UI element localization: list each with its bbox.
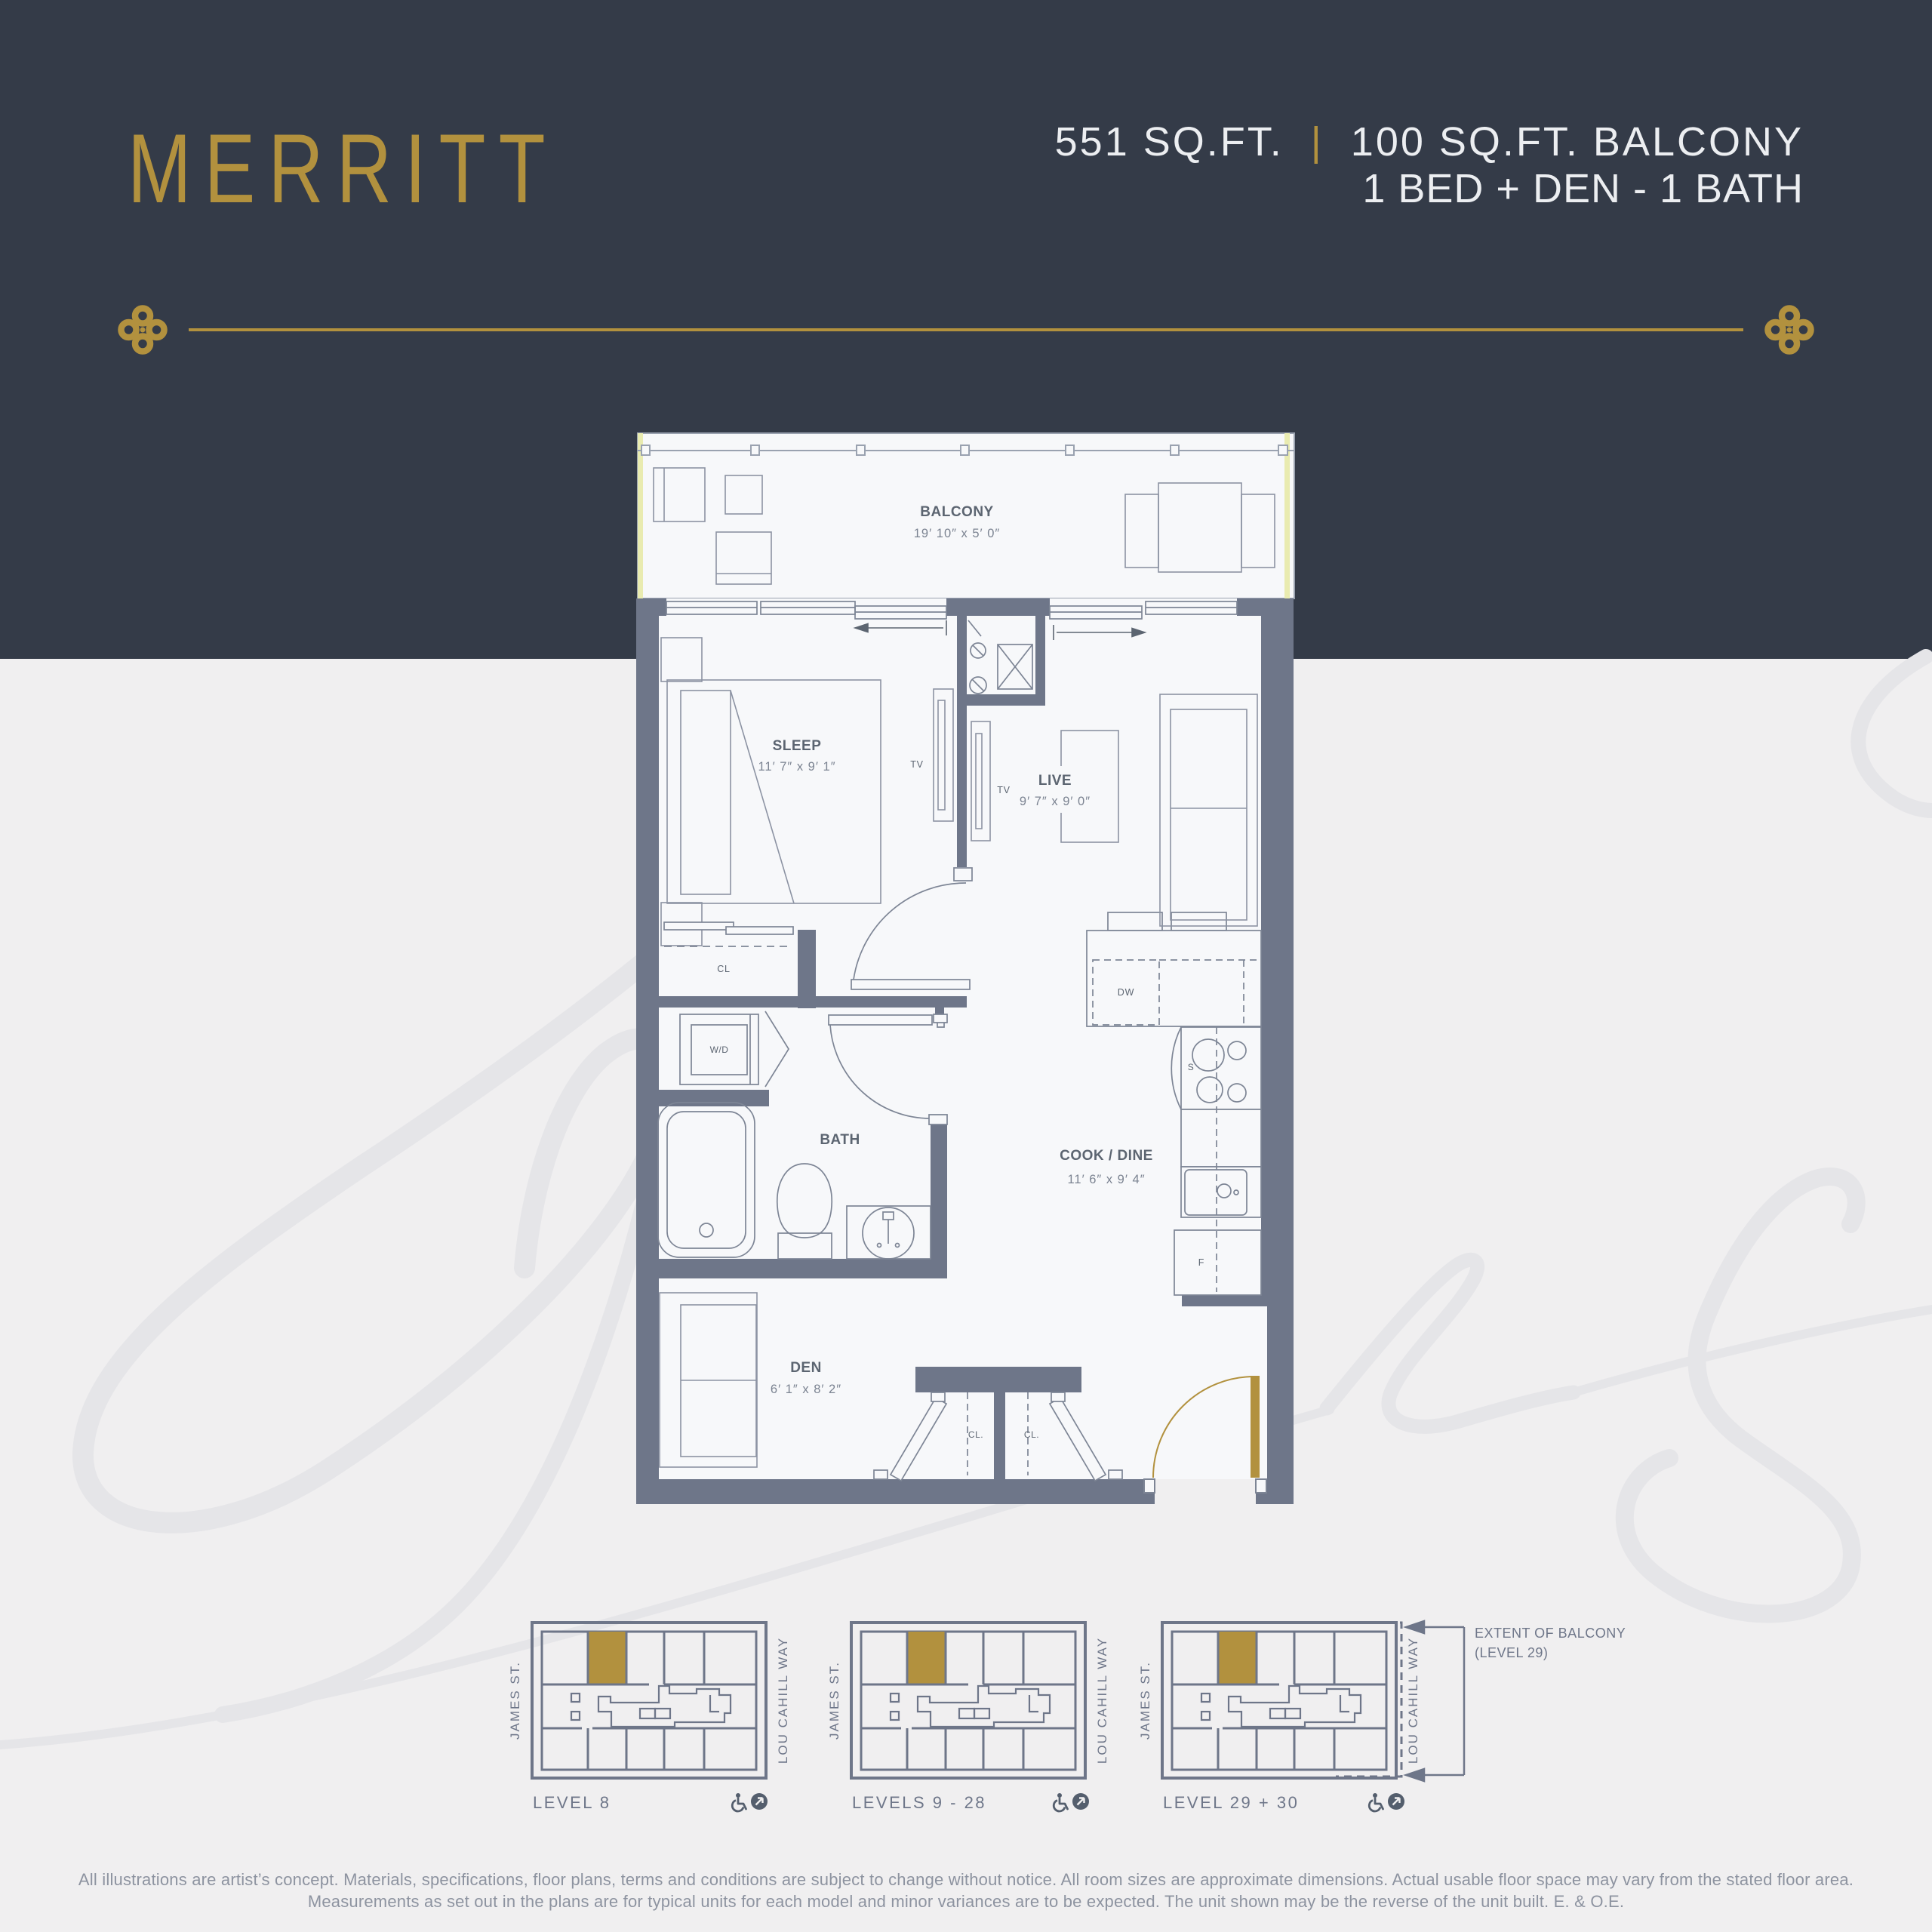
svg-text:F: F [1198, 1257, 1204, 1268]
svg-text:CL: CL [717, 964, 731, 974]
svg-text:COOK / DINE: COOK / DINE [1060, 1148, 1153, 1164]
svg-text:9′ 7″ x 9′ 0″: 9′ 7″ x 9′ 0″ [1020, 795, 1091, 808]
svg-text:W/D: W/D [710, 1044, 729, 1055]
svg-text:EXTENT OF BALCONY: EXTENT OF BALCONY [1475, 1626, 1626, 1641]
svg-text:(LEVEL 29): (LEVEL 29) [1475, 1645, 1548, 1660]
svg-text:DEN: DEN [790, 1360, 822, 1376]
svg-text:LOU CAHILL WAY: LOU CAHILL WAY [776, 1637, 790, 1764]
svg-text:LOU CAHILL WAY: LOU CAHILL WAY [1095, 1637, 1109, 1764]
svg-text:BALCONY: BALCONY [920, 504, 993, 520]
svg-text:CL.: CL. [1024, 1429, 1039, 1440]
svg-text:LOU CAHILL WAY: LOU CAHILL WAY [1406, 1637, 1420, 1764]
svg-text:CL.: CL. [968, 1429, 983, 1440]
svg-text:LEVEL 8: LEVEL 8 [533, 1793, 611, 1812]
svg-text:TV: TV [910, 759, 924, 770]
svg-text:JAMES ST.: JAMES ST. [827, 1661, 841, 1740]
svg-text:DW: DW [1118, 987, 1134, 998]
svg-text:19′ 10″ x 5′ 0″: 19′ 10″ x 5′ 0″ [914, 527, 1001, 540]
svg-text:11′ 6″ x 9′ 4″: 11′ 6″ x 9′ 4″ [1067, 1173, 1145, 1186]
svg-text:BATH: BATH [820, 1132, 860, 1148]
svg-text:S: S [1188, 1062, 1195, 1072]
svg-text:LEVELS 9 - 28: LEVELS 9 - 28 [852, 1793, 986, 1812]
svg-text:6′ 1″ x 8′ 2″: 6′ 1″ x 8′ 2″ [771, 1383, 841, 1396]
svg-text:LEVEL 29 + 30: LEVEL 29 + 30 [1163, 1793, 1299, 1812]
svg-text:11′ 7″ x 9′ 1″: 11′ 7″ x 9′ 1″ [758, 760, 835, 774]
svg-text:JAMES ST.: JAMES ST. [1138, 1661, 1152, 1740]
svg-text:LIVE: LIVE [1038, 773, 1072, 789]
svg-text:TV: TV [997, 785, 1011, 795]
svg-text:SLEEP: SLEEP [773, 738, 822, 754]
svg-text:JAMES ST.: JAMES ST. [508, 1661, 522, 1740]
